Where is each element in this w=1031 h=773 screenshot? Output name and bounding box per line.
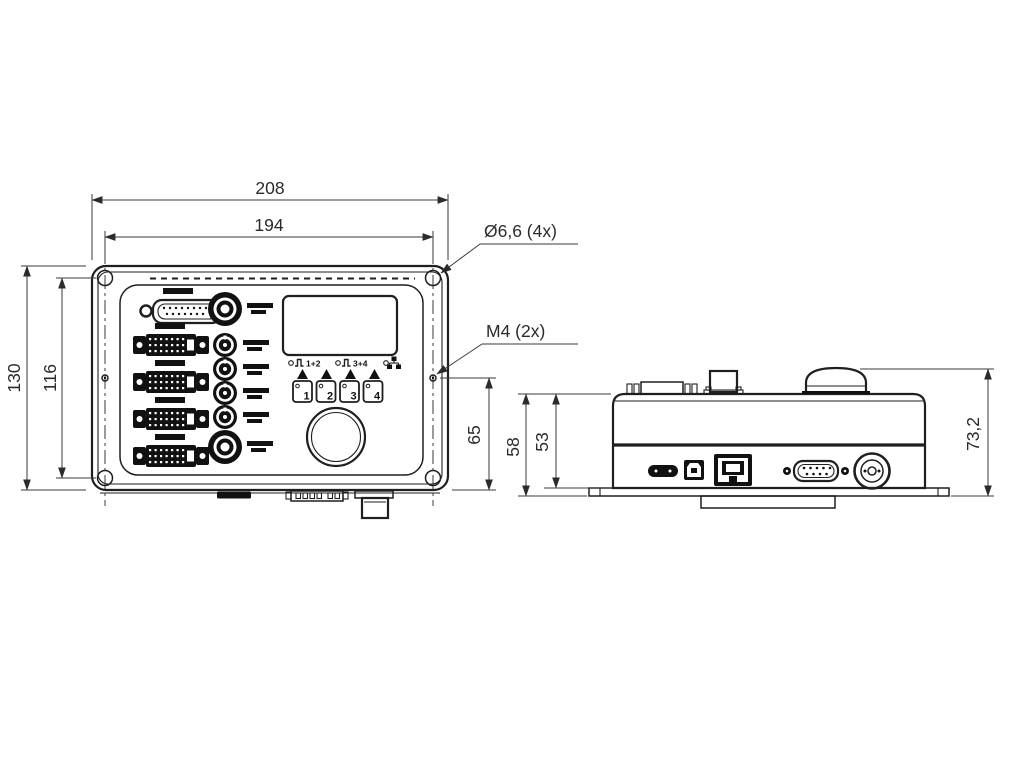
din-power-port — [855, 454, 890, 489]
pulse-icon-1 — [295, 360, 304, 367]
round-connector-bottom — [208, 430, 242, 464]
round-3-label — [243, 388, 269, 399]
video-2-label — [155, 360, 185, 366]
callout-thread-holes: M4 (2x) — [437, 321, 578, 374]
led-indicator-2 — [336, 361, 341, 366]
rear-ports — [648, 454, 890, 489]
video-3-label — [155, 397, 185, 403]
side-top-video-connector — [627, 382, 697, 394]
round-4-label — [243, 412, 269, 423]
dim-height-with-flange: 58 — [503, 437, 523, 456]
button-1-number: 1 — [303, 391, 309, 403]
channel-buttons: 1 2 3 4 — [293, 381, 383, 403]
power-port — [648, 465, 678, 477]
round-connector-2 — [213, 357, 237, 381]
callout-corner-holes: Ø6,6 (4x) — [441, 221, 578, 273]
dim-body-height: 53 — [532, 432, 552, 451]
serial-db9-port — [783, 461, 849, 481]
round-connectors — [208, 292, 273, 464]
round-connector-top — [208, 292, 242, 326]
dim-overall-height: 130 — [4, 363, 24, 392]
round-connector-3 — [213, 381, 237, 405]
dim-overall-width: 208 — [255, 178, 284, 198]
bottom-power-connector — [355, 491, 393, 518]
technical-drawing: 1+2 3+4 1 2 3 — [0, 0, 1031, 773]
warning-icon-2 — [321, 369, 332, 379]
round-2-label — [243, 364, 269, 375]
usb-b-port — [684, 460, 704, 480]
pulse-icon-2 — [342, 360, 351, 367]
bottom-small-connector — [217, 492, 251, 499]
display-screen — [283, 296, 397, 355]
front-dimensions: 208 194 130 116 65 Ø6,6 (4x) M4 — [4, 178, 578, 490]
indicator-label-1: 1+2 — [306, 359, 321, 369]
round-connector-4 — [213, 405, 237, 429]
round-top-label — [247, 303, 273, 314]
button-2-number: 2 — [327, 391, 333, 403]
warning-icon-1 — [297, 369, 308, 379]
round-connector-1 — [213, 333, 237, 357]
dim-m4-to-bottom: 65 — [464, 425, 484, 444]
video-connector-1 — [133, 334, 209, 356]
mounting-flange — [589, 488, 949, 496]
front-bottom-connectors — [217, 491, 393, 518]
indicator-label-2: 3+4 — [353, 359, 368, 369]
side-view: 58 53 73,2 — [503, 368, 994, 508]
round-1-label — [243, 340, 269, 351]
video-connector-3 — [133, 408, 209, 430]
front-view: 1+2 3+4 1 2 3 — [4, 178, 578, 518]
video-connector-2 — [133, 371, 209, 393]
callout-corner-holes-text: Ø6,6 (4x) — [484, 221, 557, 241]
button-4-number: 4 — [374, 391, 381, 403]
video-connector-4 — [133, 445, 209, 467]
rotary-knob — [307, 408, 365, 466]
callout-thread-holes-text: M4 (2x) — [486, 321, 545, 341]
round-bottom-label — [247, 441, 273, 452]
side-top-coax-connector — [704, 371, 743, 394]
warning-icon-3 — [345, 369, 356, 379]
network-icon — [387, 357, 401, 370]
dim-hole-spacing-w: 194 — [254, 215, 283, 235]
warning-icon-4 — [369, 369, 380, 379]
dim-side-overall-height: 73,2 — [963, 417, 983, 451]
video-connectors — [133, 323, 209, 467]
drawing-canvas: 1+2 3+4 1 2 3 — [0, 0, 1031, 773]
foot-plate — [701, 496, 835, 508]
dim-hole-spacing-h: 116 — [40, 364, 60, 392]
video-4-label — [155, 434, 185, 440]
video-1-label — [155, 323, 185, 329]
side-knob-profile — [802, 368, 870, 394]
button-3-number: 3 — [350, 391, 356, 403]
led-indicator-1 — [289, 361, 294, 366]
status-indicator-row: 1+2 3+4 — [289, 357, 401, 370]
dsub-label — [163, 288, 193, 294]
ethernet-port — [714, 454, 752, 486]
